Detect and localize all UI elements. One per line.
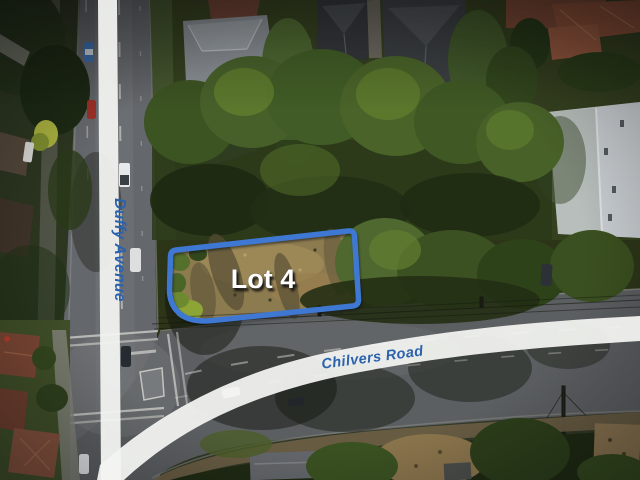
street-label-duffy-avenue: Duffy Avenue xyxy=(111,198,128,302)
screenshot-root: Duffy Avenue Chilvers Road Lot 4 xyxy=(0,0,640,480)
aerial-photo: Duffy Avenue Chilvers Road Lot 4 xyxy=(0,0,640,480)
lot-label: Lot 4 xyxy=(231,264,296,294)
photo-vignette xyxy=(0,0,640,480)
